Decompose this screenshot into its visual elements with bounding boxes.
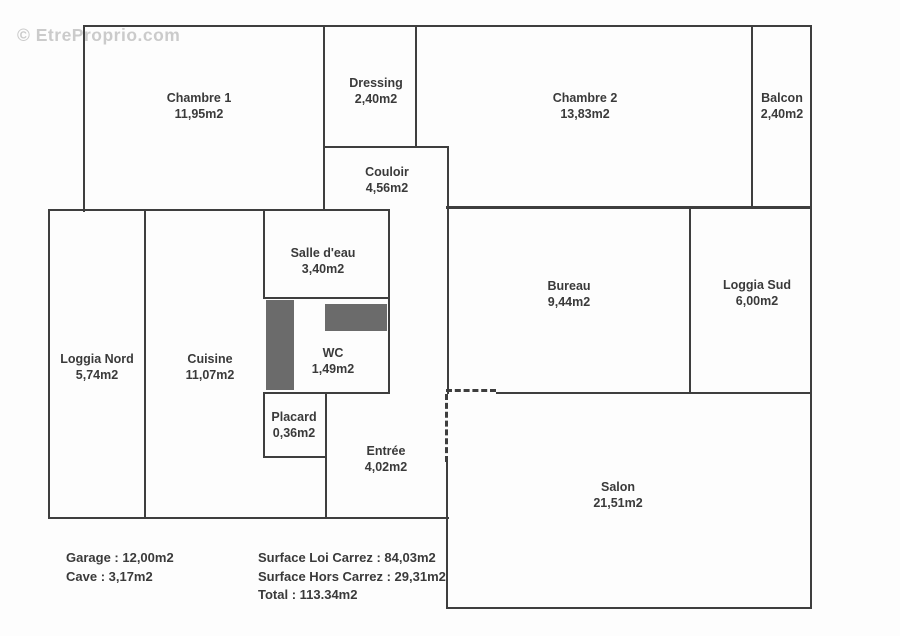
wall-chambre2-bottom <box>446 206 812 209</box>
room-area: 5,74m2 <box>60 367 134 383</box>
wall-loggia-cuisine <box>144 209 146 519</box>
wall-salon-left <box>446 462 448 609</box>
wall-chambre1-dressing <box>323 25 325 148</box>
wall-salon-top <box>496 392 811 394</box>
door-opening-entree-salon-vertical <box>445 394 448 462</box>
summary-surface-totals: Surface Loi Carrez : 84,03m2 Surface Hor… <box>258 549 446 605</box>
wall-placard-left <box>263 392 265 458</box>
room-label-placard: Placard 0,36m2 <box>271 409 316 441</box>
wall-right-exterior-top <box>810 25 812 208</box>
summary-line-cave: Cave : 3,17m2 <box>66 568 174 587</box>
room-area: 3,40m2 <box>291 261 356 277</box>
room-label-salle-deau: Salle d'eau 3,40m2 <box>291 245 356 277</box>
room-name: Balcon <box>761 90 803 106</box>
watermark-text: © EtreProprio.com <box>17 25 180 46</box>
room-area: 2,40m2 <box>761 106 803 122</box>
room-label-wc: WC 1,49m2 <box>312 345 354 377</box>
wall-salon-right <box>810 392 812 609</box>
wall-left-section-top <box>48 209 389 211</box>
wall-chambre2-balcon <box>751 25 753 208</box>
room-name: Bureau <box>547 278 590 294</box>
room-label-loggia-sud: Loggia Sud 6,00m2 <box>723 277 791 309</box>
room-name: Cuisine <box>186 351 235 367</box>
technical-block-left <box>266 300 294 390</box>
wall-couloir-right <box>447 146 449 394</box>
room-name: Loggia Nord <box>60 351 134 367</box>
room-label-entree: Entrée 4,02m2 <box>365 443 407 475</box>
room-area: 11,07m2 <box>186 367 235 383</box>
room-label-couloir: Couloir 4,56m2 <box>365 164 409 196</box>
room-label-salon: Salon 21,51m2 <box>593 479 642 511</box>
wall-salledeau-left <box>263 209 265 299</box>
summary-annex-areas: Garage : 12,00m2 Cave : 3,17m2 <box>66 549 174 586</box>
room-area: 4,56m2 <box>365 180 409 196</box>
room-area: 21,51m2 <box>593 495 642 511</box>
room-area: 13,83m2 <box>553 106 618 122</box>
wall-salledeau-bottom <box>263 297 390 299</box>
wall-wc-right <box>388 209 390 394</box>
wall-bureau-loggiasud <box>689 206 691 394</box>
wall-left-section-bottom <box>48 517 449 519</box>
wall-couloir-left <box>323 146 325 211</box>
floor-plan: © EtreProprio.com Chambre 1 11,95m2 Dres… <box>0 0 900 636</box>
room-label-bureau: Bureau 9,44m2 <box>547 278 590 310</box>
room-name: Loggia Sud <box>723 277 791 293</box>
door-opening-bureau-salon-horizontal <box>446 389 496 392</box>
summary-line-loi-carrez: Surface Loi Carrez : 84,03m2 <box>258 549 446 568</box>
room-name: Salle d'eau <box>291 245 356 261</box>
room-area: 11,95m2 <box>167 106 232 122</box>
wall-dressing-chambre2 <box>415 25 417 148</box>
wall-chambre1-left <box>83 25 85 212</box>
room-area: 9,44m2 <box>547 294 590 310</box>
wall-placard-bottom <box>263 456 327 458</box>
room-label-loggia-nord: Loggia Nord 5,74m2 <box>60 351 134 383</box>
technical-block-top <box>325 304 387 331</box>
wall-entree-left <box>325 392 327 519</box>
room-name: Chambre 1 <box>167 90 232 106</box>
room-area: 6,00m2 <box>723 293 791 309</box>
room-label-cuisine: Cuisine 11,07m2 <box>186 351 235 383</box>
room-name: Entrée <box>365 443 407 459</box>
room-area: 1,49m2 <box>312 361 354 377</box>
room-label-dressing: Dressing 2,40m2 <box>349 75 403 107</box>
room-name: Chambre 2 <box>553 90 618 106</box>
room-name: Placard <box>271 409 316 425</box>
wall-top-exterior <box>83 25 812 27</box>
room-label-balcon: Balcon 2,40m2 <box>761 90 803 122</box>
wall-dressing-bottom <box>323 146 449 148</box>
summary-line-total: Total : 113.34m2 <box>258 586 446 605</box>
summary-line-hors-carrez: Surface Hors Carrez : 29,31m2 <box>258 568 446 587</box>
wall-salon-bottom <box>446 607 811 609</box>
room-area: 4,02m2 <box>365 459 407 475</box>
room-area: 2,40m2 <box>349 91 403 107</box>
room-area: 0,36m2 <box>271 425 316 441</box>
room-label-chambre-1: Chambre 1 11,95m2 <box>167 90 232 122</box>
wall-right-exterior-mid <box>810 206 812 394</box>
room-name: Salon <box>593 479 642 495</box>
summary-line-garage: Garage : 12,00m2 <box>66 549 174 568</box>
room-name: WC <box>312 345 354 361</box>
wall-left-exterior <box>48 209 50 519</box>
room-label-chambre-2: Chambre 2 13,83m2 <box>553 90 618 122</box>
room-name: Dressing <box>349 75 403 91</box>
room-name: Couloir <box>365 164 409 180</box>
